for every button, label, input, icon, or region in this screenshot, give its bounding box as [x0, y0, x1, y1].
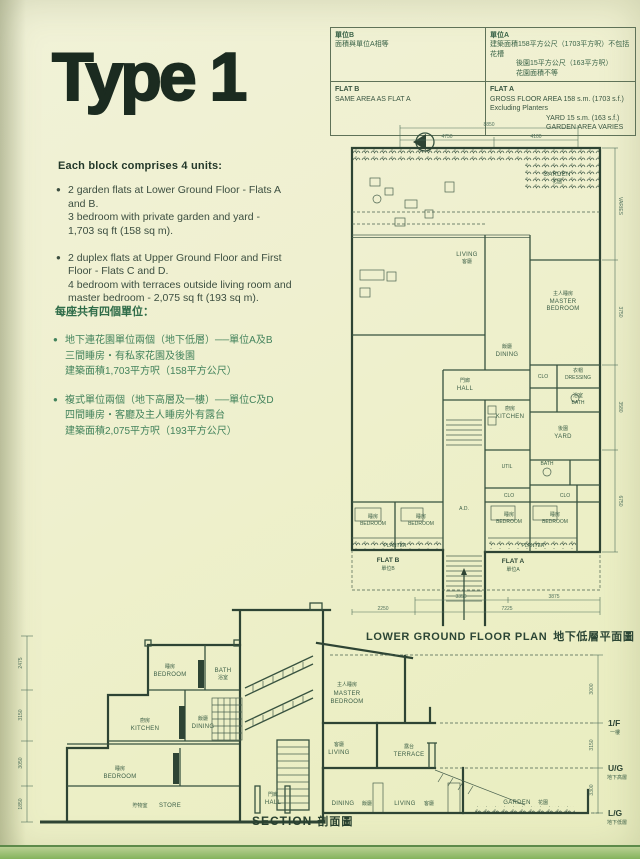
section-label-bedroom-zh: 睡房	[115, 765, 125, 772]
section-label-kitchen: KITCHEN	[131, 726, 159, 732]
bullet-icon: ●	[56, 185, 61, 195]
plan-planters: PLANTER PLANTER	[353, 539, 576, 549]
plan-interior-walls	[352, 235, 600, 552]
spec-cell-flat-b-zh: 單位B 面積與單位A相等	[331, 28, 486, 82]
spec-line: FLAT B	[335, 85, 481, 94]
intro-line: 2 duplex flats at Upper Ground Floor and…	[68, 252, 326, 266]
dim-label: VARIES	[617, 197, 623, 216]
section-room-labels: 睡房 BEDROOM BATH 浴室 廚房 KITCHEN 飯廳 DINING …	[103, 663, 548, 809]
dim-label: 3300	[589, 784, 595, 795]
section-label-garden: GARDEN	[503, 800, 530, 806]
bullet-icon: ●	[53, 334, 58, 346]
level-label-lg: L/G	[608, 808, 623, 818]
section-dims-left: 2475 3150 3050 1850	[18, 636, 33, 822]
brochure-page: Type 1 Each block comprises 4 units: ● 2…	[0, 0, 640, 857]
plan-label-bedroom: BEDROOM	[408, 521, 434, 527]
level-label-1f-zh: 一樓	[610, 729, 620, 736]
plan-label-dressing-zh: 衣帽	[573, 367, 583, 374]
intro-heading: Each block comprises 4 units:	[58, 160, 326, 172]
level-label-lg-zh: 地下低層	[607, 819, 627, 826]
section-caption-en: SECTION	[252, 814, 312, 828]
section-label-terrace: TERRACE	[394, 752, 425, 758]
intro-zh-bullet-1: ● 地下連花園單位兩個（地下低層）──單位A及B 三間睡房・有私家花園及後園 建…	[55, 333, 330, 380]
plan-garden: GARDEN 花園	[352, 149, 600, 226]
plan-label-living-zh: 客廳	[462, 258, 472, 265]
plan-label-clo: CLO	[560, 493, 570, 499]
plan-label-yard-zh: 後園	[558, 425, 568, 432]
section-label-store: STORE	[159, 803, 181, 809]
plan-label-yard: YARD	[554, 434, 572, 440]
dim-label: 6750	[617, 495, 623, 506]
plan-label-bath: BATH	[572, 400, 585, 406]
section-caption-zh: 剖面圖	[317, 816, 353, 828]
plan-label-garden: GARDEN	[543, 172, 570, 178]
plan-label-garden-zh: 花園	[552, 178, 562, 185]
intro-line: 4 bedroom with terraces outside living r…	[68, 279, 326, 293]
dim-label: 3750	[617, 306, 623, 317]
plan-label-planter: PLANTER	[383, 543, 406, 549]
plan-label-flat-a-zh: 單位A	[506, 566, 520, 573]
intro-bullet-2: ● 2 duplex flats at Upper Ground Floor a…	[58, 252, 326, 307]
plan-label-ad: A.D.	[459, 506, 469, 512]
plan-outer-walls	[352, 148, 600, 625]
bullet-icon: ●	[53, 394, 58, 406]
section-label-living-zh: 客廳	[424, 800, 434, 807]
plan-label-living: LIVING	[456, 252, 478, 258]
section-label-bedroom: BEDROOM	[153, 672, 186, 678]
section-label-hall: HALL	[265, 800, 282, 806]
section-label-terrace-zh: 露台	[404, 743, 414, 750]
page-title: Type 1	[52, 38, 244, 116]
spec-line: 面積與單位A相等	[335, 40, 481, 49]
dim-label: 2475	[18, 657, 24, 668]
bullet-icon: ●	[56, 253, 61, 263]
plan-label-bedroom: BEDROOM	[542, 519, 568, 525]
spec-line: 單位A	[490, 31, 631, 40]
section-label-bath-zh: 浴室	[218, 674, 228, 681]
plan-label-bedroom-zh: 睡房	[368, 513, 378, 520]
section-label-bath: BATH	[215, 668, 232, 674]
section-label-kitchen-zh: 廚房	[140, 717, 150, 724]
dim-label: 3150	[589, 739, 595, 750]
plan-label-planter: PLANTER	[521, 543, 544, 549]
plan-label-dressing: DRESSING	[565, 375, 591, 381]
section-label-dining: DINING	[192, 724, 215, 730]
level-label-1f: 1/F	[608, 718, 620, 728]
intro-zh-line: 複式單位兩個（地下高層及一樓）──單位C及D	[65, 393, 330, 409]
plan-label-kitchen-zh: 廚房	[505, 405, 515, 412]
intro-line: 2 garden flats at Lower Ground Floor - F…	[68, 184, 326, 198]
spec-line: 單位B	[335, 31, 481, 40]
dim-label: 3050	[18, 757, 24, 768]
section-label-garden-zh: 花園	[538, 799, 548, 806]
section-label-hall-zh: 門廊	[268, 791, 278, 798]
plan-furniture	[355, 270, 579, 521]
intro-zh-line: 三間睡房・有私家花園及後園	[65, 349, 330, 365]
plan-label-bedroom-zh: 睡房	[504, 511, 514, 518]
plan-label-hall: HALL	[457, 386, 474, 392]
section-label-dining-zh: 飯廳	[362, 800, 372, 807]
section-label-bedroom-zh: 睡房	[165, 663, 175, 670]
spec-line: 花園面積不等	[490, 69, 631, 78]
section-label-bedroom: BEDROOM	[103, 774, 136, 780]
intro-line: Floor - Flats C and D.	[68, 265, 326, 279]
level-label-ug-zh: 地下高層	[607, 774, 627, 781]
intro-line: 3 bedroom with private garden and yard -	[68, 211, 326, 225]
intro-line: and B.	[68, 198, 326, 212]
intro-zh-line: 建築面積2,075平方呎（193平方公尺）	[65, 424, 330, 440]
section-drawing: 2475 3150 3050 1850	[5, 598, 635, 843]
dim-label: 3150	[18, 709, 24, 720]
section-label-living-zh: 客廳	[334, 741, 344, 748]
plan-label-util: UTIL	[502, 464, 513, 470]
section-label-dining: DINING	[332, 801, 355, 807]
intro-line: 1,703 sq ft (158 sq m).	[68, 225, 326, 239]
intro-zh-bullet-2: ● 複式單位兩個（地下高層及一樓）──單位C及D 四間睡房・客廳及主人睡房外有露…	[55, 393, 330, 440]
plan-label-hall-zh: 門廊	[460, 377, 470, 384]
plan-label-flat-b: FLAT B	[377, 557, 400, 564]
plan-label-dining-zh: 飯廳	[502, 343, 512, 350]
dim-label: 4750	[441, 134, 452, 140]
intro-bullet-1: ● 2 garden flats at Lower Ground Floor -…	[58, 184, 326, 239]
dim-label: 1850	[18, 798, 24, 809]
dim-label: 3580	[617, 401, 623, 412]
section-label-living: LIVING	[394, 801, 416, 807]
plan-label-master: BEDROOM	[546, 306, 579, 312]
plan-label-flat-a: FLAT A	[502, 558, 525, 565]
plan-label-clo: CLO	[504, 493, 514, 499]
section-label-master: MASTER	[334, 691, 361, 697]
spec-line: GROSS FLOOR AREA 158 s.m. (1703 s.f.) Ex…	[490, 95, 631, 114]
spec-line: FLAT A	[490, 85, 631, 94]
dim-label: 8850	[483, 122, 494, 128]
intro-zh-line: 四間睡房・客廳及主人睡房外有露台	[65, 408, 330, 424]
section-label-store-zh: 貯物室	[132, 802, 147, 809]
section-label-dining-zh: 飯廳	[198, 715, 208, 722]
level-label-ug: U/G	[608, 763, 624, 773]
spec-line: 建築面積158平方公尺（1703平方呎）不包括花槽	[490, 40, 631, 59]
section-structure	[40, 603, 588, 822]
plan-label-clo: CLO	[538, 374, 548, 380]
plan-label-dining: DINING	[496, 352, 519, 358]
plan-dims-right: VARIES 3750 3580 6750	[602, 148, 623, 552]
plan-label-bedroom: BEDROOM	[496, 519, 522, 525]
floor-plan-drawing: 8850 4750 4100 GARDEN 花園	[325, 120, 640, 625]
plan-label-kitchen: KITCHEN	[496, 414, 524, 420]
plan-label-bath-zh: 浴室	[573, 392, 583, 399]
intro-zh-heading: 每座共有四個單位：	[55, 303, 330, 319]
plan-label-master-zh: 主人睡房	[553, 290, 573, 297]
section-label-living: LIVING	[328, 750, 350, 756]
section-label-master-zh: 主人睡房	[337, 681, 357, 688]
section-label-master: BEDROOM	[330, 699, 363, 705]
spec-line: SAME AREA AS FLAT A	[335, 95, 481, 104]
section-caption: SECTION剖面圖	[252, 813, 353, 829]
intro-chinese: 每座共有四個單位： ● 地下連花園單位兩個（地下低層）──單位A及B 三間睡房・…	[55, 303, 330, 452]
plan-dims-top: 8850 4750 4100	[400, 122, 578, 148]
plan-label-flat-b-zh: 單位B	[381, 565, 395, 572]
section-dims-right: 3000 3150 3300 1/F 一樓 U/G 地下高層 L/G 地下低層	[330, 655, 627, 826]
spec-cell-flat-a-zh: 單位A 建築面積158平方公尺（1703平方呎）不包括花槽 後園15平方公尺（1…	[486, 28, 636, 82]
intro-zh-line: 建築面積1,703平方呎（158平方公尺）	[65, 364, 330, 380]
dim-label: 3000	[589, 683, 595, 694]
plan-label-bath2: BATH	[541, 461, 554, 467]
intro-zh-line: 地下連花園單位兩個（地下低層）──單位A及B	[65, 333, 330, 349]
spec-line: 後園15平方公尺（163平方呎）	[490, 59, 631, 68]
plan-label-bedroom-zh: 睡房	[550, 511, 560, 518]
intro-english: Each block comprises 4 units: ● 2 garden…	[58, 160, 326, 319]
plan-label-bedroom: BEDROOM	[360, 521, 386, 527]
dim-label: 4100	[530, 134, 541, 140]
plan-label-bedroom-zh: 睡房	[416, 513, 426, 520]
plan-label-master: MASTER	[550, 299, 577, 305]
